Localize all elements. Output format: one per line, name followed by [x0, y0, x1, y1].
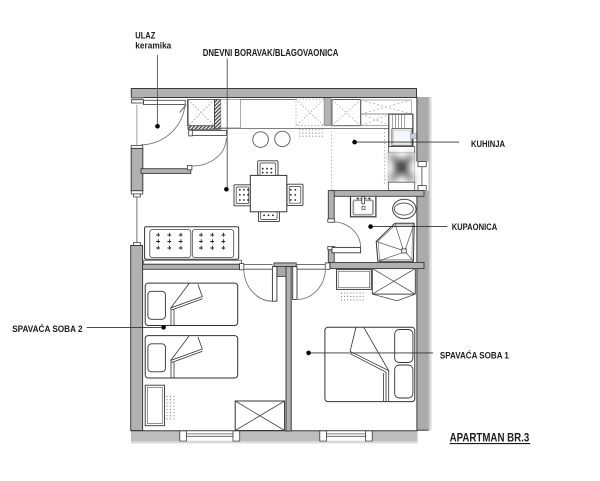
svg-text:KUHINJA: KUHINJA	[471, 139, 505, 150]
svg-text:keramika: keramika	[135, 41, 172, 52]
svg-text:KUPAONICA: KUPAONICA	[452, 222, 498, 233]
svg-text:SPAVAĆA SOBA 1: SPAVAĆA SOBA 1	[440, 349, 510, 361]
svg-text:SPAVAĆA SOBA 2: SPAVAĆA SOBA 2	[12, 323, 82, 335]
svg-text:APARTMAN BR.3: APARTMAN BR.3	[450, 431, 530, 445]
svg-text:DNEVNI BORAVAK/BLAGOVAONICA: DNEVNI BORAVAK/BLAGOVAONICA	[203, 47, 339, 59]
